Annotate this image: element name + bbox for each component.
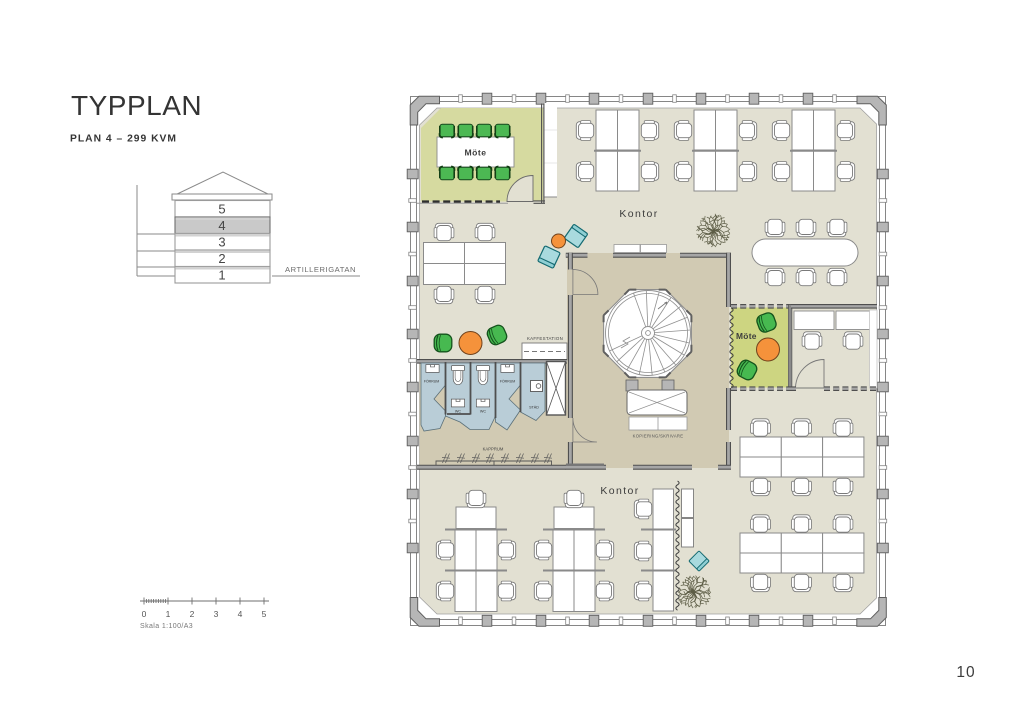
svg-text:3: 3 (218, 235, 225, 250)
svg-text:0: 0 (142, 609, 147, 619)
svg-text:Kontor: Kontor (619, 208, 658, 220)
svg-text:FÖRRUM: FÖRRUM (500, 380, 515, 384)
svg-text:4: 4 (238, 609, 243, 619)
svg-text:STÄD: STÄD (529, 406, 539, 410)
svg-text:Skala 1:100/A3: Skala 1:100/A3 (140, 623, 193, 630)
svg-text:2: 2 (218, 251, 225, 266)
svg-text:KOPIERING/SKRIVARE: KOPIERING/SKRIVARE (633, 434, 684, 439)
svg-text:WC: WC (455, 410, 461, 414)
svg-text:PLAN 4 – 299 KVM: PLAN 4 – 299 KVM (70, 134, 177, 145)
svg-text:10: 10 (956, 664, 975, 681)
svg-text:1: 1 (166, 609, 171, 619)
svg-text:WC: WC (480, 410, 486, 414)
svg-text:4: 4 (218, 218, 225, 233)
svg-text:2: 2 (190, 609, 195, 619)
svg-text:Kontor: Kontor (600, 485, 639, 497)
svg-text:TYPPLAN: TYPPLAN (71, 90, 202, 121)
svg-text:3: 3 (214, 609, 219, 619)
svg-text:5: 5 (218, 202, 225, 217)
svg-text:FÖRRUM: FÖRRUM (424, 380, 439, 384)
svg-text:ARTILLERIGATAN: ARTILLERIGATAN (285, 265, 356, 274)
svg-text:KAPPRUM: KAPPRUM (483, 447, 504, 452)
svg-text:Möte: Möte (736, 331, 757, 341)
svg-text:KAFFESTATION: KAFFESTATION (527, 336, 563, 341)
svg-text:5: 5 (262, 609, 267, 619)
svg-text:1: 1 (218, 268, 225, 283)
svg-text:Möte: Möte (464, 148, 486, 158)
